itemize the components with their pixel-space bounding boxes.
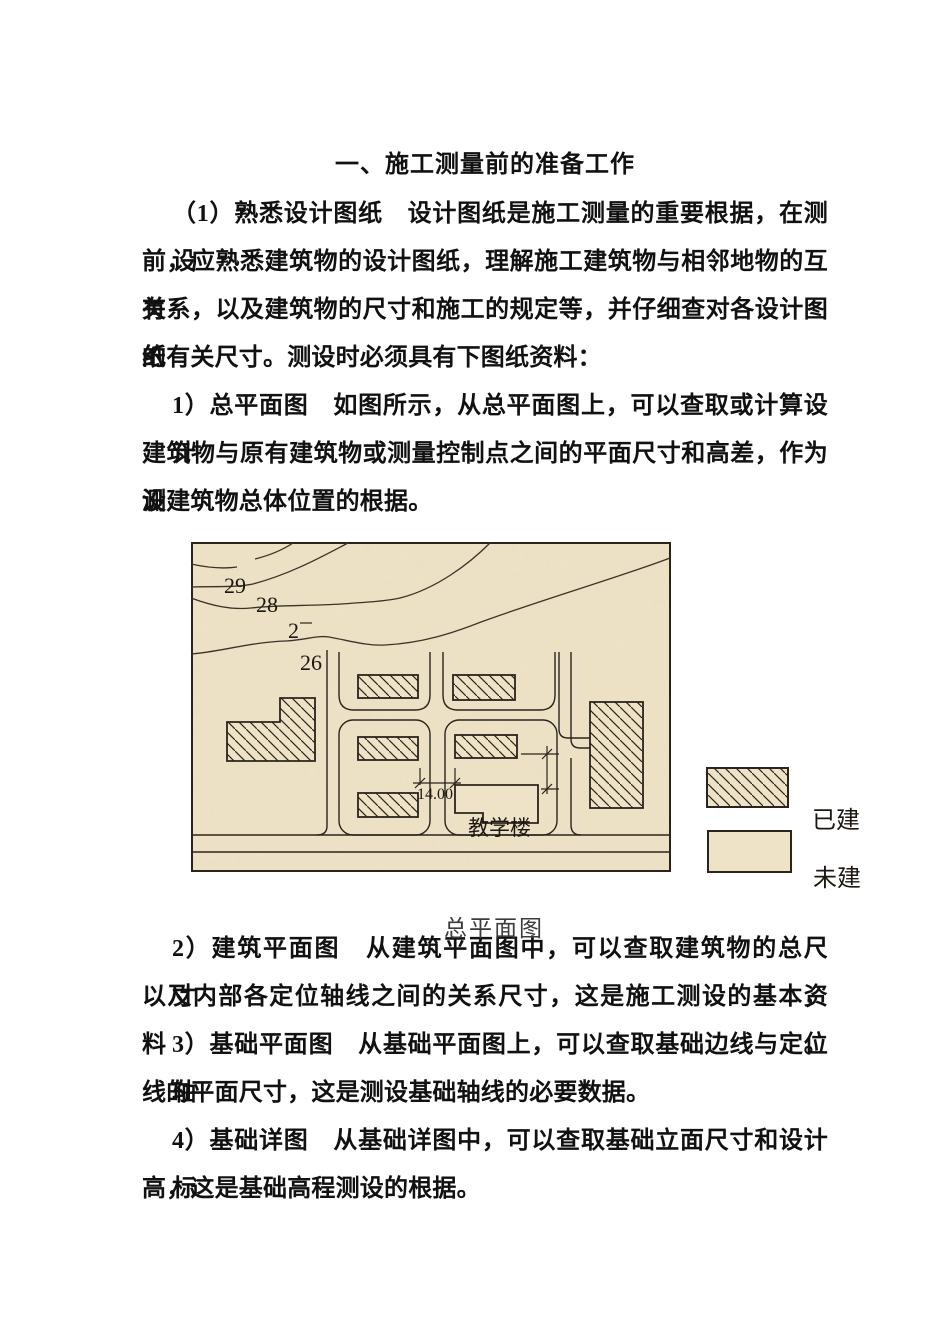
paragraph-2: 1）总平面图 如图所示，从总平面图上，可以查取或计算设计 建筑物与原有建筑物或测… <box>142 382 828 526</box>
text-line: 以及内部各定位轴线之间的关系尺寸，这是施工测设的基本资料。 <box>142 973 828 1021</box>
building-hatched <box>455 735 517 758</box>
building-hatched <box>453 675 515 700</box>
text-line: 1）总平面图 如图所示，从总平面图上，可以查取或计算设计 <box>142 382 828 430</box>
legend: 已建 未建 <box>707 768 861 892</box>
legend-swatch-unbuilt <box>708 831 791 872</box>
text-line: 高，这是基础高程测设的根据。 <box>142 1165 828 1213</box>
legend-label-unbuilt: 未建 <box>813 865 861 892</box>
page-title: 一、施工测量前的准备工作 <box>142 148 828 182</box>
planned-building-label: 教学楼 <box>468 816 531 840</box>
text-line: 线的平面尺寸，这是测设基础轴线的必要数据。 <box>142 1069 828 1117</box>
paragraph-5: 4）基础详图 从基础详图中，可以查取基础立面尺寸和设计标 高，这是基础高程测设的… <box>142 1117 828 1213</box>
text-line: 设建筑物总体位置的根据。 <box>142 478 828 526</box>
legend-label-built: 已建 <box>812 807 860 834</box>
text-line: 建筑物与原有建筑物或测量控制点之间的平面尺寸和高差，作为测 <box>142 430 828 478</box>
site-plan-figure: 29 28 2 26 教学楼 <box>191 542 910 946</box>
dimension-value: 14.00 <box>417 786 453 803</box>
contour-label-28: 28 <box>256 592 278 617</box>
building-hatched <box>358 793 418 817</box>
text-line: 关系，以及建筑物的尺寸和施工的规定等，并仔细查对各设计图纸 <box>142 286 828 334</box>
text-line: 3）基础平面图 从基础平面图上，可以查取基础边线与定位轴 <box>142 1021 828 1069</box>
text-line: 的有关尺寸。测设时必须具有下图纸资料： <box>142 334 828 382</box>
contour-label-29: 29 <box>224 573 246 598</box>
contour-label-2: 2 <box>288 618 299 643</box>
text-line: （1）熟悉设计图纸 设计图纸是施工测量的重要根据，在测设 <box>142 190 828 238</box>
building-hatched-tall <box>590 702 643 808</box>
legend-swatch-built <box>707 768 788 807</box>
text-line: 前，应熟悉建筑物的设计图纸，理解施工建筑物与相邻地物的互有 <box>142 238 828 286</box>
site-plan-map: 29 28 2 26 教学楼 <box>191 543 671 871</box>
building-hatched <box>358 675 418 698</box>
contour-label-26: 26 <box>300 650 322 675</box>
paragraph-1: （1）熟悉设计图纸 设计图纸是施工测量的重要根据，在测设 前，应熟悉建筑物的设计… <box>142 190 828 382</box>
building-hatched <box>358 737 418 760</box>
figure-caption: 总平面图 <box>444 916 544 941</box>
paragraph-4: 3）基础平面图 从基础平面图上，可以查取基础边线与定位轴 线的平面尺寸，这是测设… <box>142 1021 828 1117</box>
text-line: 4）基础详图 从基础详图中，可以查取基础立面尺寸和设计标 <box>142 1117 828 1165</box>
